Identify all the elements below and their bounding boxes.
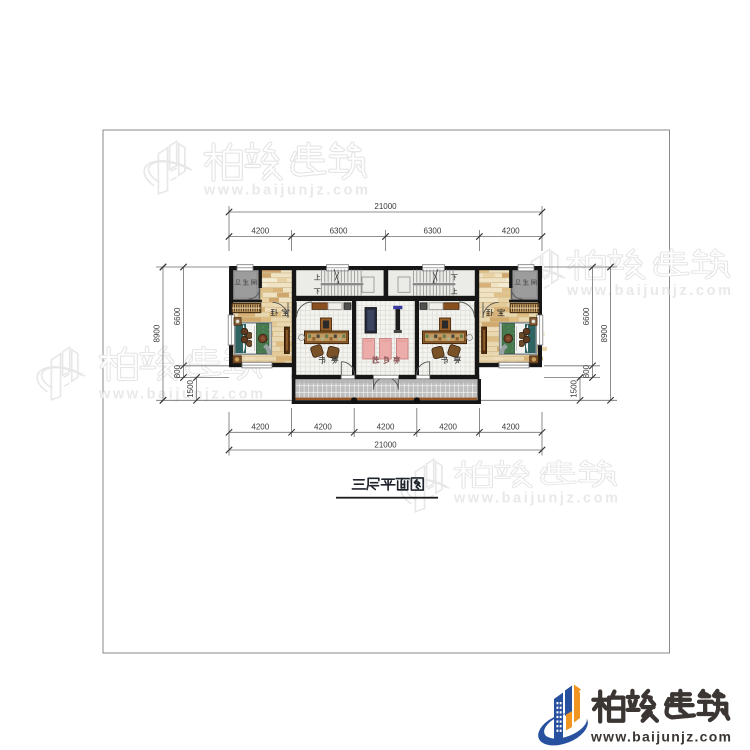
svg-text:6300: 6300 [424, 227, 442, 236]
svg-text:8900: 8900 [600, 324, 609, 342]
svg-text:4200: 4200 [251, 423, 269, 432]
svg-text:4200: 4200 [502, 423, 520, 432]
svg-text:800: 800 [582, 364, 591, 378]
svg-text:6300: 6300 [330, 227, 348, 236]
svg-text:4200: 4200 [439, 423, 457, 432]
svg-text:www.baijunjz.com: www.baijunjz.com [453, 491, 620, 507]
svg-text:1500: 1500 [570, 379, 579, 397]
svg-text:6600: 6600 [582, 307, 591, 325]
svg-text:800: 800 [173, 364, 182, 378]
svg-text:6600: 6600 [173, 307, 182, 325]
svg-text:4200: 4200 [377, 423, 395, 432]
svg-text:4200: 4200 [251, 227, 269, 236]
svg-text:www.baijunjz.com: www.baijunjz.com [590, 729, 731, 745]
svg-text:1500: 1500 [186, 379, 195, 397]
svg-text:4200: 4200 [502, 227, 520, 236]
svg-text:4200: 4200 [314, 423, 332, 432]
svg-text:www.baijunjz.com: www.baijunjz.com [203, 183, 370, 199]
svg-text:8900: 8900 [153, 324, 162, 342]
svg-text:www.baijunjz.com: www.baijunjz.com [566, 283, 733, 299]
svg-text:21000: 21000 [374, 202, 397, 211]
svg-text:21000: 21000 [374, 440, 397, 449]
